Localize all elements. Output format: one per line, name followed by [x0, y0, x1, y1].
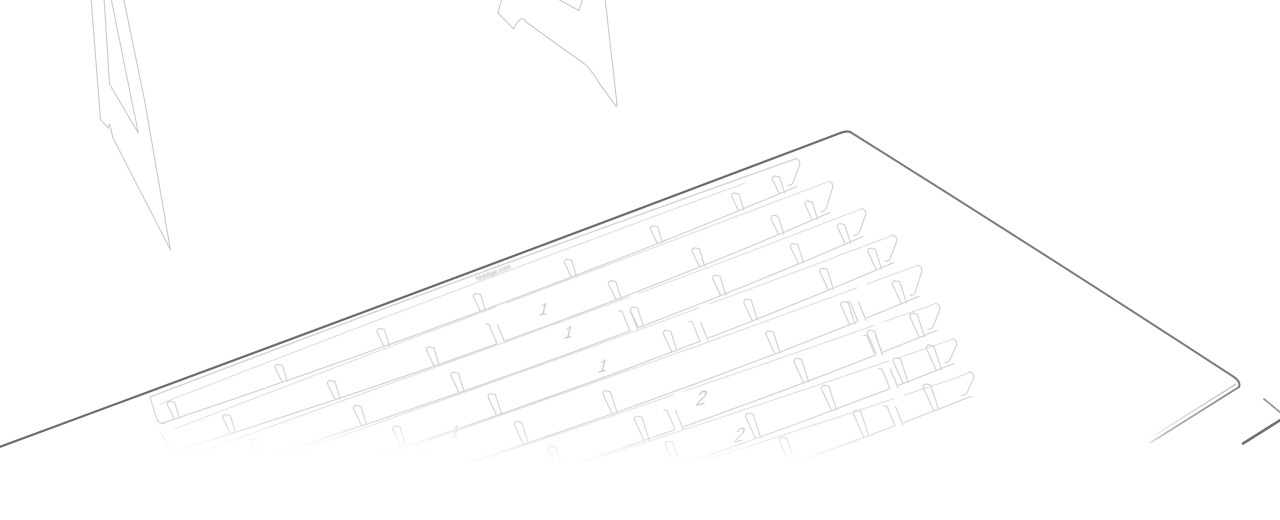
- svg-text:1: 1: [537, 299, 551, 320]
- svg-text:2: 2: [732, 423, 748, 448]
- svg-text:2: 2: [694, 386, 710, 411]
- svg-text:1: 1: [596, 355, 610, 377]
- svg-text:1: 1: [562, 322, 576, 343]
